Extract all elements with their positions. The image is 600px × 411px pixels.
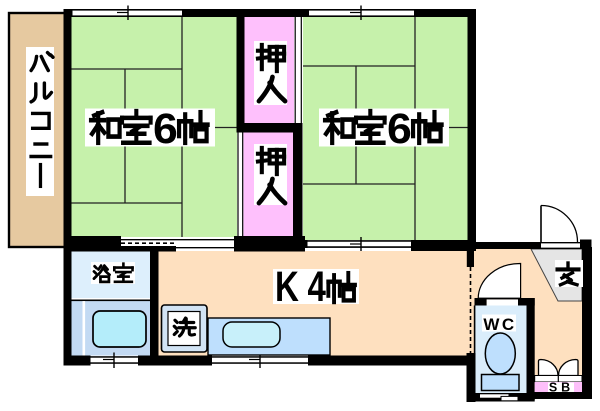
svg-text:6: 6 [153, 106, 178, 153]
svg-text:K: K [275, 264, 299, 311]
svg-text:6: 6 [387, 106, 412, 153]
svg-text:4: 4 [308, 264, 326, 311]
svg-text:SB: SB [549, 381, 574, 395]
svg-text:WC: WC [483, 315, 516, 334]
